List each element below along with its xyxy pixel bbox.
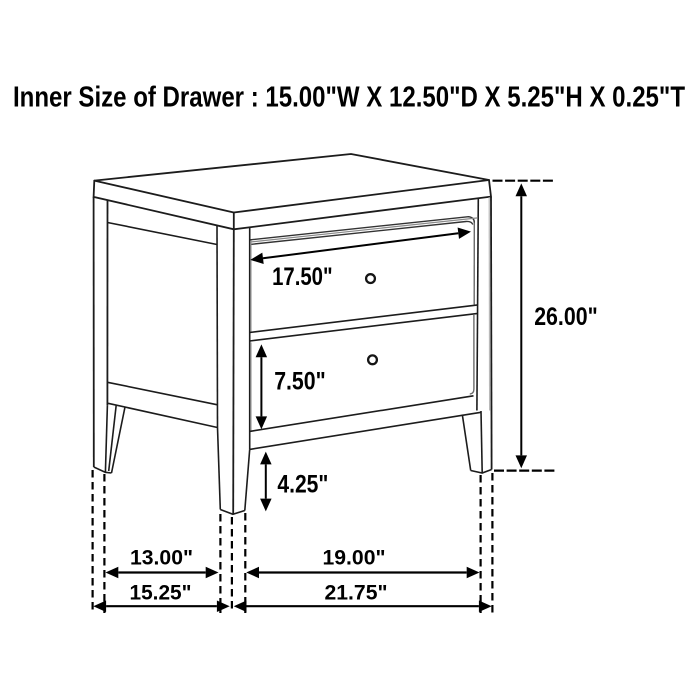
svg-text:19.00": 19.00" xyxy=(323,545,386,569)
svg-text:15.25": 15.25" xyxy=(130,581,192,605)
svg-text:4.25": 4.25" xyxy=(277,470,328,498)
svg-text:17.50": 17.50" xyxy=(272,263,333,291)
svg-text:26.00": 26.00" xyxy=(534,303,598,331)
svg-text:7.50": 7.50" xyxy=(274,368,326,396)
svg-text:Inner Size of Drawer : 15.00"W: Inner Size of Drawer : 15.00"W X 12.50"D… xyxy=(13,82,685,114)
svg-text:21.75": 21.75" xyxy=(325,581,388,605)
svg-text:13.00": 13.00" xyxy=(130,545,193,569)
